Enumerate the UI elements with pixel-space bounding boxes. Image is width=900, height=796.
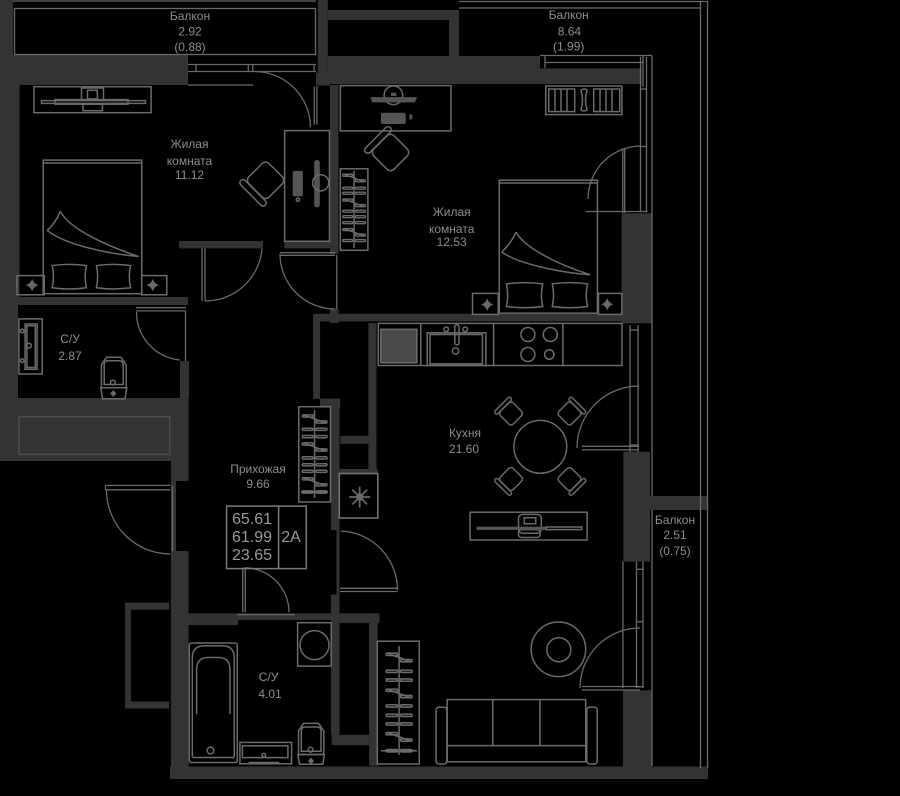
- svg-text:2.87: 2.87: [58, 349, 82, 363]
- svg-text:2.92: 2.92: [178, 25, 202, 39]
- svg-text:2.51: 2.51: [663, 528, 687, 542]
- svg-text:Балкон: Балкон: [170, 9, 210, 23]
- svg-text:12.53: 12.53: [437, 235, 467, 249]
- svg-text:Жилая: Жилая: [433, 205, 471, 219]
- svg-text:9.66: 9.66: [246, 477, 270, 491]
- svg-text:С/У: С/У: [259, 670, 279, 684]
- svg-text:Жилая: Жилая: [171, 137, 209, 151]
- svg-text:4.01: 4.01: [258, 687, 282, 701]
- svg-text:61.99: 61.99: [232, 529, 272, 546]
- svg-text:Кухня: Кухня: [449, 426, 481, 440]
- svg-text:С/У: С/У: [60, 332, 80, 346]
- svg-text:Балкон: Балкон: [655, 513, 695, 527]
- svg-text:23.65: 23.65: [232, 547, 272, 564]
- svg-text:8.64: 8.64: [558, 25, 582, 39]
- svg-text:комната: комната: [167, 154, 213, 168]
- svg-text:(0.88): (0.88): [174, 40, 205, 54]
- svg-text:Балкон: Балкон: [549, 8, 589, 22]
- svg-text:21.60: 21.60: [449, 442, 479, 456]
- svg-text:комната: комната: [429, 222, 475, 236]
- svg-text:2А: 2А: [281, 529, 301, 546]
- svg-text:11.12: 11.12: [175, 168, 204, 182]
- svg-text:Прихожая: Прихожая: [230, 462, 286, 476]
- svg-text:65.61: 65.61: [232, 511, 272, 528]
- svg-text:(1.99): (1.99): [553, 40, 584, 54]
- svg-text:(0.75): (0.75): [659, 544, 690, 558]
